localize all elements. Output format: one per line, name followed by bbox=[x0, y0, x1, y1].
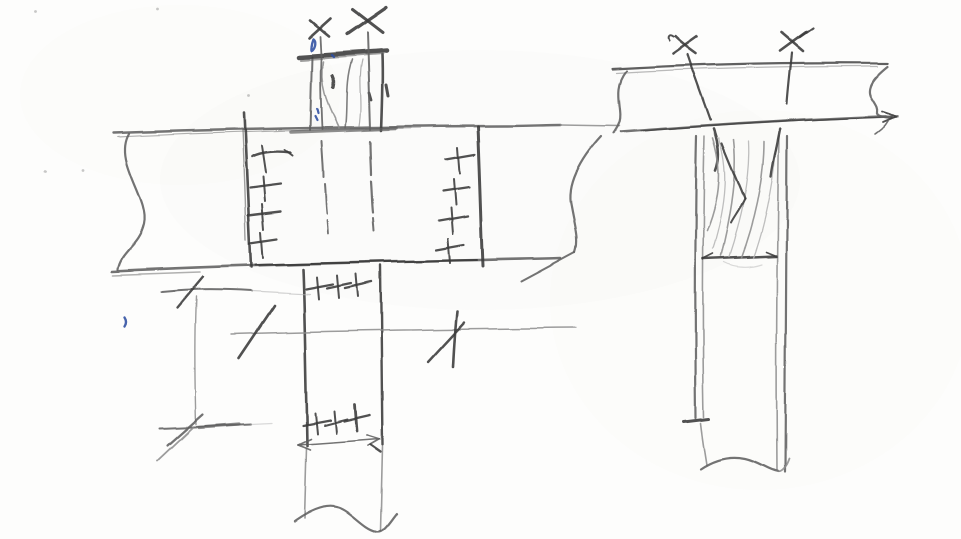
paper-speckle bbox=[81, 169, 84, 172]
sketch-figure bbox=[0, 0, 961, 539]
paper-speckle bbox=[44, 171, 47, 174]
paper-speckle bbox=[35, 10, 38, 13]
sketch-canvas bbox=[0, 0, 961, 539]
paper-speckle bbox=[248, 95, 251, 98]
paper-speckle bbox=[157, 8, 160, 11]
scanned-sketch-page bbox=[0, 0, 961, 539]
